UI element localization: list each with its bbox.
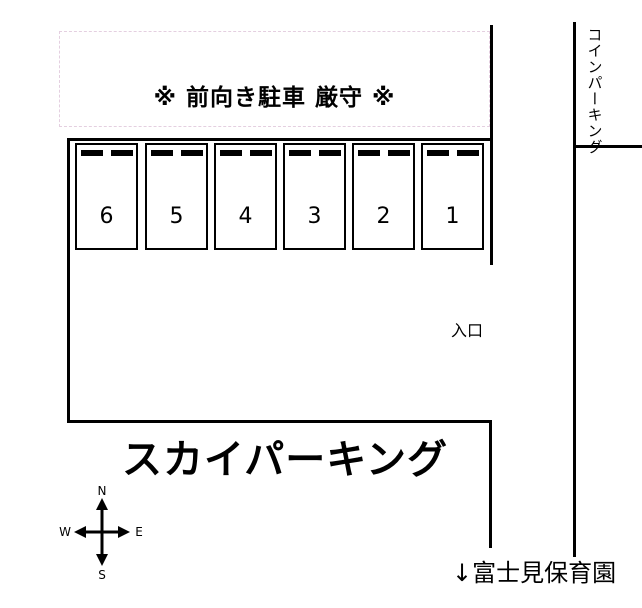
stopper-dash <box>358 150 380 156</box>
front-parking-notice-text: ※ 前向き駐車 厳守 ※ <box>154 78 396 112</box>
stopper-dash <box>151 150 173 156</box>
compass-rose: N S W E <box>52 486 152 581</box>
parking-space-6: 6 <box>75 143 138 250</box>
compass-south-label: S <box>98 568 106 581</box>
boundary-line-parking-top <box>67 138 493 141</box>
wheel-stopper-marks <box>147 150 206 156</box>
wheel-stopper-marks <box>285 150 344 156</box>
nursery-direction-label: ↓富士見保育園 <box>452 560 616 586</box>
parking-space-3: 3 <box>283 143 346 250</box>
parking-space-number: 3 <box>285 206 344 228</box>
stopper-dash <box>319 150 341 156</box>
parking-space-2: 2 <box>352 143 415 250</box>
compass-west-arrow-icon <box>74 526 86 538</box>
road-line-right-branch <box>573 145 642 148</box>
stopper-dash <box>388 150 410 156</box>
front-parking-notice-banner: ※ 前向き駐車 厳守 ※ <box>59 31 490 127</box>
stopper-dash <box>181 150 203 156</box>
compass-west-label: W <box>59 525 71 539</box>
parking-space-4: 4 <box>214 143 277 250</box>
compass-north-label: N <box>98 486 107 498</box>
parking-space-number: 6 <box>77 206 136 228</box>
stopper-dash <box>111 150 133 156</box>
stopper-dash <box>81 150 103 156</box>
parking-space-number: 1 <box>423 206 482 228</box>
coin-parking-label: コインパーキング <box>586 27 603 155</box>
parking-lot-title: スカイパーキング <box>65 438 505 482</box>
compass-east-label: E <box>135 525 143 539</box>
parking-space-5: 5 <box>145 143 208 250</box>
compass-north-arrow-icon <box>96 498 108 510</box>
stopper-dash <box>289 150 311 156</box>
parking-map: ※ 前向き駐車 厳守 ※ 6 5 4 3 2 1 入口 スカイパーキング コイン… <box>0 0 642 608</box>
road-line-far-right <box>573 22 576 557</box>
stopper-dash <box>220 150 242 156</box>
stopper-dash <box>250 150 272 156</box>
parking-space-number: 2 <box>354 206 413 228</box>
compass-east-arrow-icon <box>118 526 130 538</box>
stopper-dash <box>427 150 449 156</box>
wheel-stopper-marks <box>354 150 413 156</box>
compass-south-arrow-icon <box>96 554 108 566</box>
parking-space-1: 1 <box>421 143 484 250</box>
boundary-line-right-upper <box>490 25 493 265</box>
parking-space-number: 4 <box>216 206 275 228</box>
boundary-line-bottom <box>67 420 492 423</box>
stopper-dash <box>457 150 479 156</box>
entrance-label: 入口 <box>451 322 483 340</box>
wheel-stopper-marks <box>77 150 136 156</box>
wheel-stopper-marks <box>423 150 482 156</box>
boundary-line-left <box>67 138 70 423</box>
parking-space-number: 5 <box>147 206 206 228</box>
wheel-stopper-marks <box>216 150 275 156</box>
